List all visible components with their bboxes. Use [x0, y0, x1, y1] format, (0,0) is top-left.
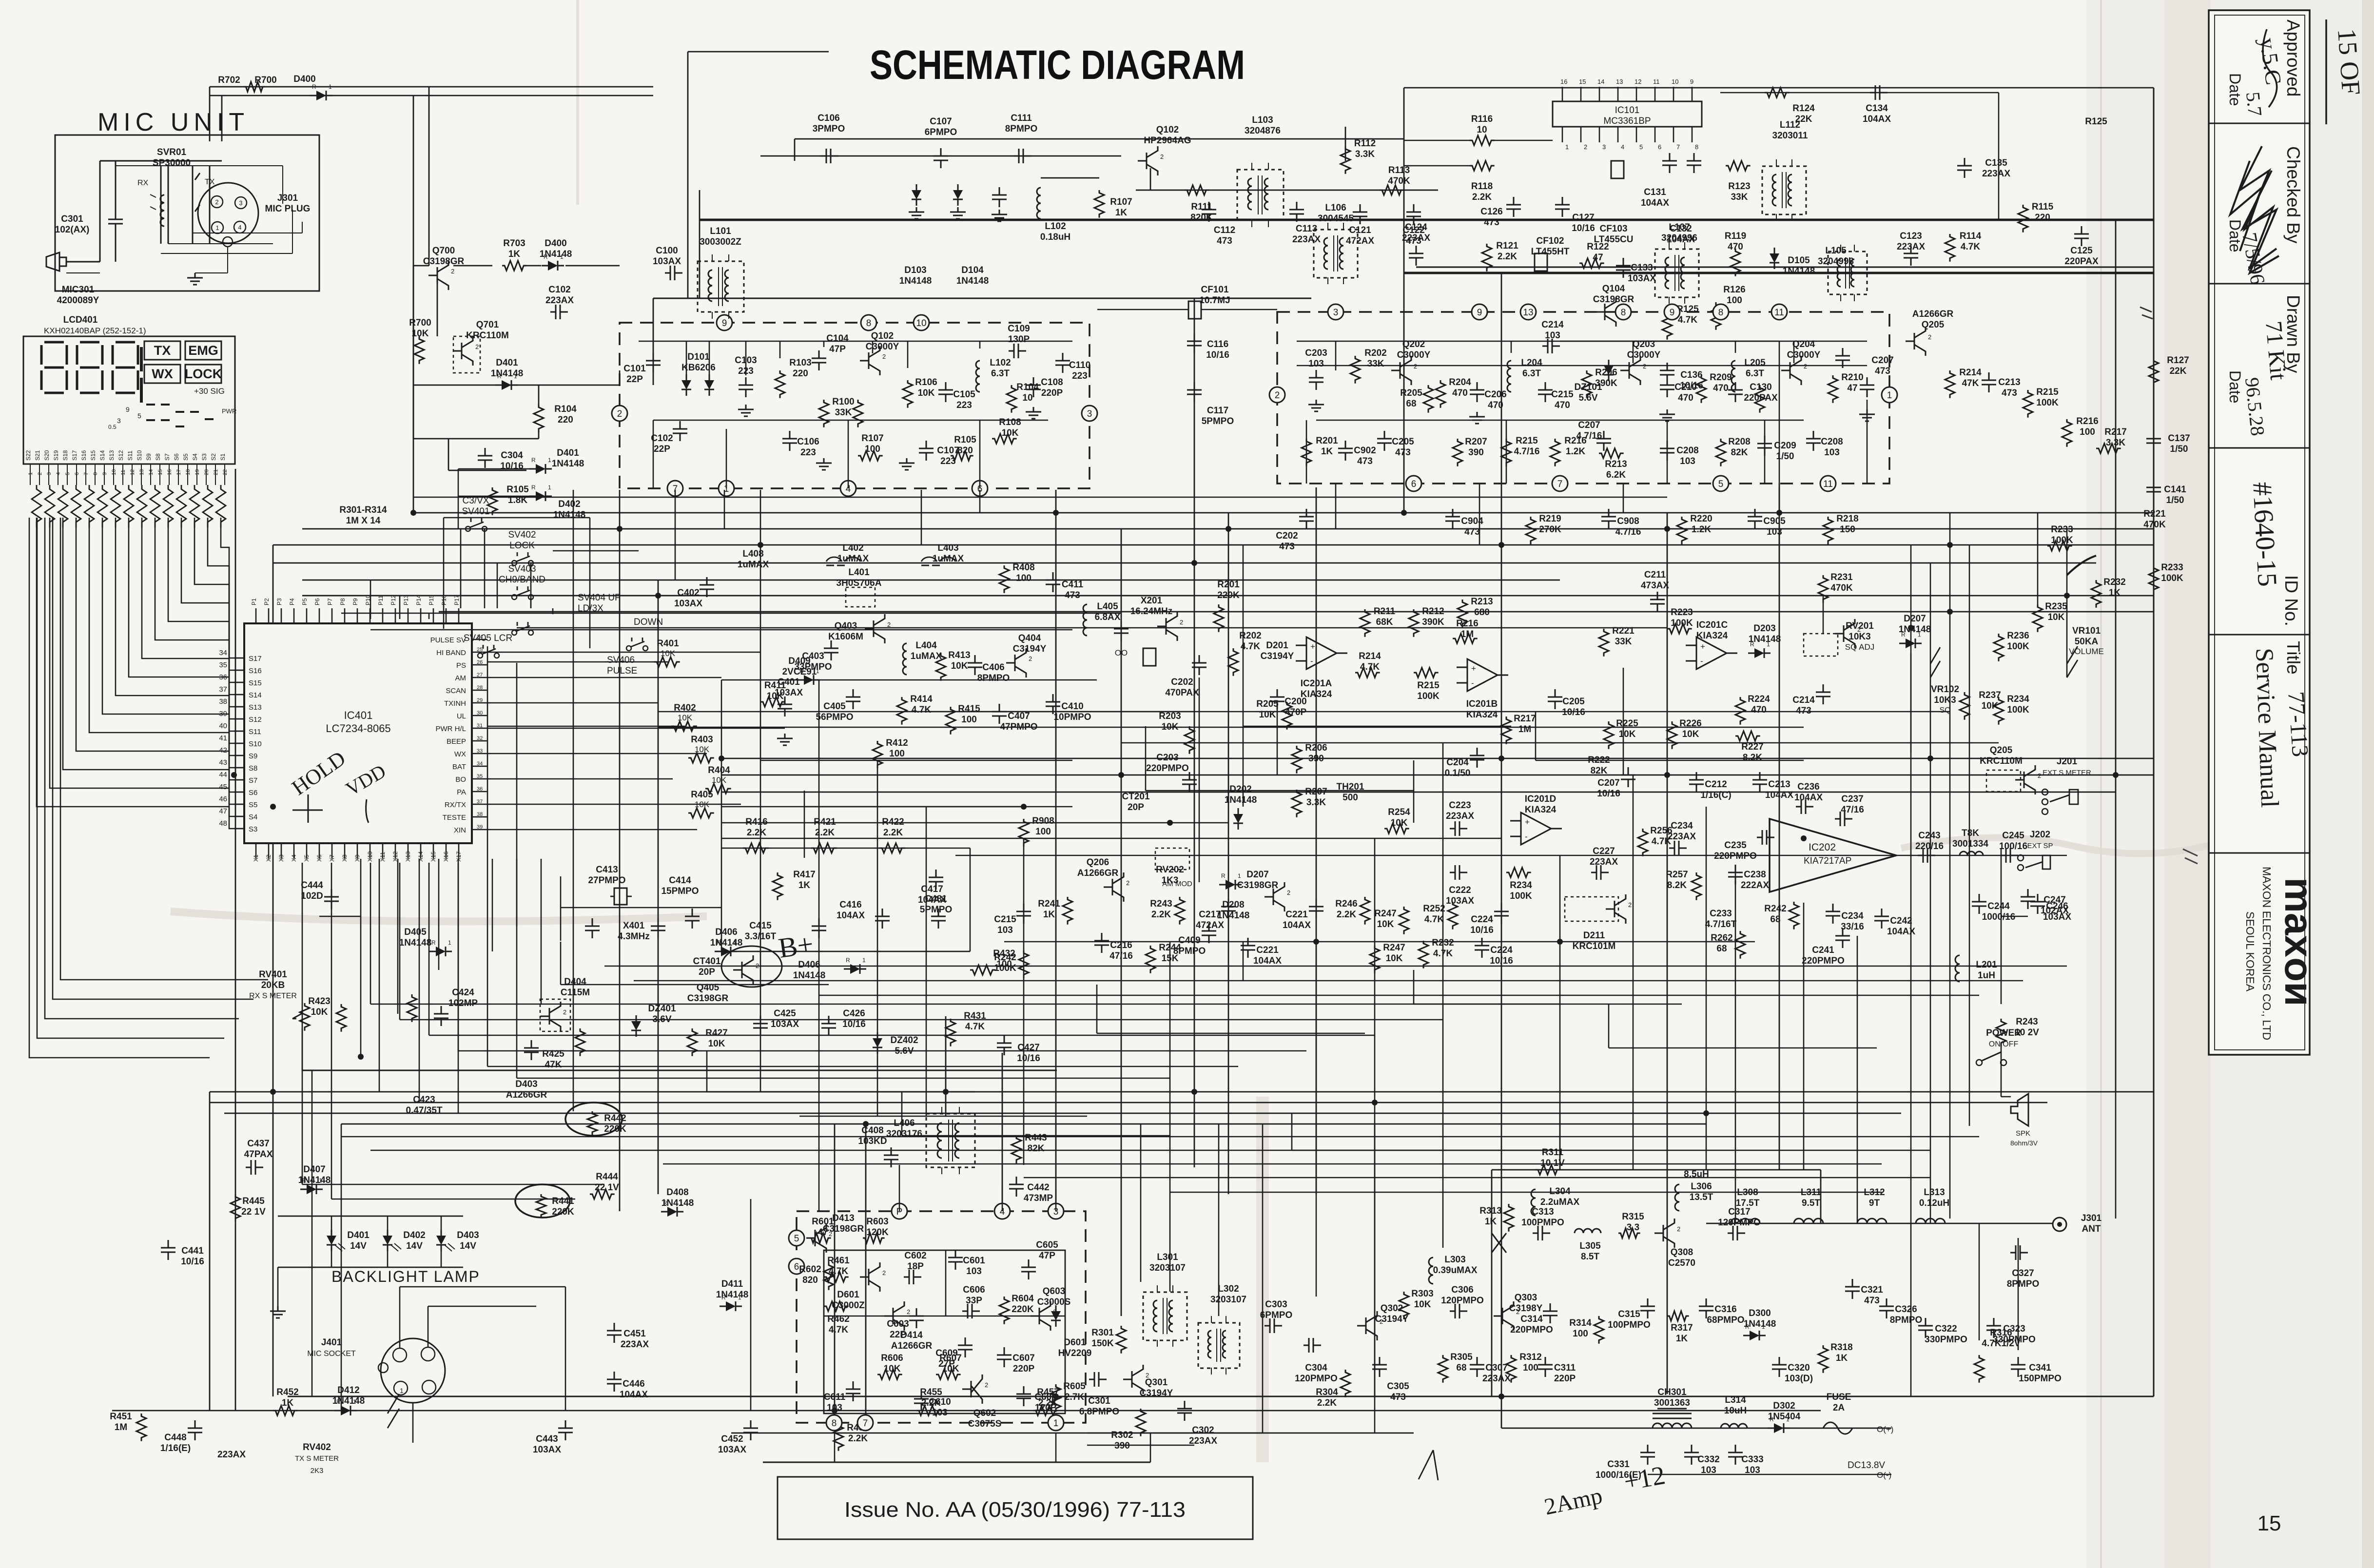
svg-text:C209: C209: [1774, 441, 1796, 451]
svg-text:390: 390: [1468, 447, 1484, 458]
svg-text:6PMPO: 6PMPO: [925, 127, 957, 137]
svg-text:35: 35: [219, 661, 227, 669]
svg-text:1N4148: 1N4148: [332, 1396, 365, 1406]
svg-text:473: 473: [1864, 1296, 1880, 1306]
svg-text:P4: P4: [289, 598, 295, 605]
svg-text:R304: R304: [1316, 1387, 1338, 1397]
svg-text:6: 6: [74, 472, 80, 475]
svg-text:DC13.8V: DC13.8V: [1848, 1460, 1885, 1471]
svg-text:71 Kit: 71 Kit: [2260, 320, 2291, 381]
svg-text:R314: R314: [1569, 1318, 1592, 1328]
svg-text:2: 2: [1677, 1225, 1680, 1233]
svg-text:Checked By: Checked By: [2283, 146, 2303, 244]
svg-text:104AX: 104AX: [837, 910, 865, 921]
svg-text:22K: 22K: [1795, 114, 1812, 124]
svg-text:D403: D403: [457, 1230, 479, 1240]
svg-text:R213: R213: [1605, 459, 1627, 469]
svg-text:S3: S3: [201, 453, 208, 461]
svg-text:SQ: SQ: [1939, 706, 1950, 715]
svg-text:13: 13: [1523, 308, 1533, 318]
svg-text:15PMPO: 15PMPO: [661, 886, 699, 896]
svg-text:C238: C238: [1744, 870, 1766, 880]
svg-text:6: 6: [1658, 143, 1661, 151]
svg-text:R106: R106: [915, 377, 937, 387]
svg-text:C208: C208: [1821, 437, 1843, 447]
svg-text:104AX: 104AX: [1863, 114, 1891, 124]
svg-text:3204998: 3204998: [1818, 256, 1854, 267]
svg-text:100K: 100K: [2007, 641, 2029, 652]
svg-text:C101: C101: [623, 364, 646, 374]
svg-text:R214: R214: [1959, 368, 1982, 378]
svg-text:9: 9: [126, 406, 130, 413]
svg-text:R421: R421: [814, 817, 836, 827]
svg-text:R412: R412: [886, 738, 908, 748]
svg-text:C242: C242: [1890, 916, 1912, 926]
svg-text:X4: X4: [291, 854, 297, 862]
svg-text:C425: C425: [774, 1008, 796, 1019]
svg-text:9.5T: 9.5T: [1802, 1198, 1820, 1208]
svg-text:10/16: 10/16: [1597, 789, 1620, 799]
svg-text:C908: C908: [1617, 516, 1639, 526]
svg-text:HP2964AG: HP2964AG: [1144, 136, 1191, 146]
svg-text:7: 7: [1557, 479, 1563, 489]
svg-text:P1: P1: [251, 598, 257, 605]
svg-text:Q102: Q102: [871, 331, 894, 341]
svg-text:C606: C606: [963, 1285, 985, 1295]
svg-text:S8: S8: [155, 453, 161, 461]
svg-text:R315: R315: [1622, 1212, 1644, 1222]
svg-text:R124: R124: [1792, 103, 1815, 114]
svg-text:C3000Z: C3000Z: [832, 1300, 865, 1311]
svg-text:1: 1: [329, 83, 332, 90]
svg-text:2: 2: [907, 1308, 910, 1316]
svg-text:17.5T: 17.5T: [1736, 1198, 1760, 1208]
svg-text:D203: D203: [1753, 623, 1775, 634]
svg-text:8PMPO: 8PMPO: [2007, 1279, 2040, 1289]
svg-text:R401: R401: [657, 639, 679, 649]
svg-text:R607: R607: [939, 1353, 961, 1363]
svg-text:C443: C443: [536, 1434, 558, 1444]
svg-text:P12: P12: [390, 595, 397, 605]
svg-text:R441: R441: [552, 1196, 574, 1206]
svg-text:SVR01: SVR01: [157, 147, 187, 157]
svg-text:D405: D405: [404, 927, 427, 937]
svg-text:1K: 1K: [1485, 1217, 1497, 1227]
svg-text:SV405 LCR: SV405 LCR: [464, 633, 512, 643]
svg-text:DZ401: DZ401: [648, 1004, 676, 1014]
svg-text:R247: R247: [1374, 909, 1396, 919]
svg-text:10 1V: 10 1V: [1540, 1158, 1565, 1168]
svg-text:8PMPO: 8PMPO: [977, 673, 1010, 683]
svg-text:47: 47: [817, 1227, 828, 1238]
svg-text:10K: 10K: [1377, 919, 1394, 929]
svg-text:S5: S5: [182, 453, 189, 461]
svg-text:C221: C221: [1285, 910, 1308, 920]
svg-text:AM MOD: AM MOD: [1162, 880, 1192, 888]
svg-text:2.2K: 2.2K: [815, 828, 835, 838]
svg-text:C215: C215: [994, 914, 1016, 925]
svg-text:22P: 22P: [890, 1330, 906, 1340]
svg-text:C244: C244: [1987, 901, 2010, 911]
svg-text:820: 820: [802, 1275, 818, 1285]
svg-text:2.2K: 2.2K: [1337, 910, 1356, 920]
svg-text:C110: C110: [1069, 360, 1090, 370]
svg-text:D400: D400: [545, 238, 566, 249]
svg-text:35: 35: [477, 774, 483, 779]
svg-text:1N4148: 1N4148: [553, 510, 586, 520]
svg-text:R451: R451: [110, 1412, 132, 1422]
svg-text:R241: R241: [1038, 899, 1060, 909]
svg-text:R302: R302: [1111, 1430, 1133, 1440]
svg-text:3001363: 3001363: [1654, 1398, 1690, 1408]
svg-text:473: 473: [1796, 706, 1811, 716]
svg-text:R404: R404: [708, 765, 730, 775]
svg-text:C202: C202: [1276, 531, 1298, 541]
svg-text:4.7/16T: 4.7/16T: [1705, 919, 1737, 929]
svg-text:2A: 2A: [1833, 1403, 1845, 1413]
svg-text:C306: C306: [1451, 1285, 1473, 1295]
svg-text:390K: 390K: [1595, 378, 1617, 388]
svg-text:1K: 1K: [2109, 588, 2121, 598]
svg-text:MIC PLUG: MIC PLUG: [265, 204, 311, 214]
svg-text:R605: R605: [1063, 1381, 1086, 1392]
svg-text:3PMPO: 3PMPO: [813, 124, 845, 134]
svg-text:223AX: 223AX: [1402, 233, 1430, 243]
svg-text:IC401: IC401: [344, 709, 373, 721]
svg-text:S18: S18: [62, 450, 69, 461]
svg-text:4.7K: 4.7K: [1678, 315, 1697, 325]
svg-text:R: R: [846, 957, 850, 964]
svg-text:C213: C213: [1768, 779, 1790, 790]
svg-text:R414: R414: [910, 694, 933, 704]
svg-text:39: 39: [219, 710, 227, 718]
svg-text:R908: R908: [1032, 816, 1054, 826]
svg-text:R443: R443: [1025, 1133, 1047, 1143]
svg-text:R125: R125: [2085, 116, 2107, 127]
svg-text:L406: L406: [894, 1118, 915, 1128]
svg-text:223AX: 223AX: [1482, 1374, 1511, 1384]
svg-text:R121: R121: [1496, 241, 1518, 251]
svg-text:82K: 82K: [1028, 1143, 1045, 1154]
svg-text:100: 100: [961, 715, 977, 725]
svg-text:KIA324: KIA324: [1301, 689, 1332, 699]
svg-text:1N4148: 1N4148: [552, 459, 584, 469]
svg-text:2VCE91: 2VCE91: [782, 667, 817, 677]
svg-text:10/16: 10/16: [1572, 223, 1595, 233]
svg-text:R413: R413: [948, 650, 970, 660]
svg-text:47/16: 47/16: [1109, 951, 1133, 961]
svg-text:R113: R113: [1388, 165, 1410, 175]
svg-text:2.2K: 2.2K: [1498, 252, 1517, 262]
svg-text:C405: C405: [823, 701, 846, 712]
svg-text:C451: C451: [623, 1329, 646, 1339]
svg-text:68: 68: [1716, 944, 1727, 954]
svg-text:37: 37: [219, 685, 227, 694]
svg-text:1/50: 1/50: [2170, 444, 2188, 454]
svg-text:470: 470: [1488, 400, 1503, 410]
svg-text:1.2K: 1.2K: [1566, 446, 1585, 457]
svg-text:11: 11: [1774, 308, 1784, 318]
svg-text:103AX: 103AX: [718, 1445, 746, 1455]
svg-text:68: 68: [1406, 399, 1416, 409]
svg-text:10K: 10K: [1002, 428, 1019, 438]
svg-text:R209: R209: [1710, 372, 1732, 383]
svg-text:39: 39: [477, 824, 483, 830]
svg-text:R217: R217: [1514, 714, 1536, 724]
svg-text:10: 10: [1672, 78, 1678, 85]
svg-text:S7: S7: [164, 453, 171, 461]
svg-text:R208: R208: [1728, 437, 1750, 447]
svg-text:R: R: [531, 484, 536, 491]
svg-text:R427: R427: [705, 1028, 727, 1038]
svg-text:473: 473: [1484, 217, 1499, 228]
svg-text:R213: R213: [1471, 597, 1493, 607]
svg-text:BACKLIGHT LAMP: BACKLIGHT LAMP: [331, 1268, 480, 1285]
svg-text:470K: 470K: [1388, 176, 1410, 186]
svg-text:1N4148: 1N4148: [956, 276, 989, 286]
svg-text:47PAX: 47PAX: [244, 1149, 273, 1160]
svg-text:C317: C317: [1728, 1207, 1750, 1217]
svg-text:2.2K: 2.2K: [1151, 910, 1171, 920]
svg-text:KRC101M: KRC101M: [1573, 941, 1616, 951]
svg-text:10/16: 10/16: [1562, 707, 1585, 717]
svg-text:16: 16: [1560, 78, 1567, 85]
svg-text:22P: 22P: [654, 444, 670, 454]
svg-text:2: 2: [475, 343, 479, 350]
svg-text:1N4148: 1N4148: [491, 368, 524, 379]
svg-text:DZ402: DZ402: [890, 1035, 918, 1045]
svg-text:100: 100: [1573, 1329, 1588, 1339]
svg-text:6.3T: 6.3T: [1522, 368, 1541, 379]
svg-text:SCHEMATIC DIAGRAM: SCHEMATIC DIAGRAM: [870, 42, 1245, 88]
svg-text:1K: 1K: [1321, 446, 1333, 457]
svg-text:100K: 100K: [2051, 535, 2073, 545]
svg-text:C3194Y: C3194Y: [1261, 651, 1294, 661]
svg-text:4200089Y: 4200089Y: [57, 295, 99, 306]
svg-text:D404: D404: [564, 977, 586, 987]
svg-text:R603: R603: [866, 1217, 888, 1227]
svg-text:C3198GR: C3198GR: [1237, 880, 1279, 890]
svg-text:CT201: CT201: [1122, 792, 1149, 802]
svg-text:2: 2: [1126, 879, 1129, 887]
svg-text:LOCK: LOCK: [185, 367, 222, 381]
svg-text:14V: 14V: [460, 1241, 476, 1251]
svg-text:1N4148: 1N4148: [399, 938, 432, 948]
svg-text:C213: C213: [1998, 377, 2020, 387]
svg-text:D401: D401: [496, 358, 518, 368]
svg-text:1: 1: [548, 457, 551, 464]
svg-text:2: 2: [882, 353, 886, 360]
svg-text:L302: L302: [1218, 1284, 1239, 1294]
svg-text:C130: C130: [1750, 382, 1771, 392]
svg-text:1N4148: 1N4148: [1225, 795, 1257, 805]
svg-text:21: 21: [213, 469, 219, 475]
svg-text:L103: L103: [1252, 115, 1273, 125]
svg-text:D401: D401: [557, 448, 579, 458]
svg-text:P8: P8: [339, 598, 346, 605]
svg-text:C322: C322: [1935, 1324, 1957, 1334]
svg-text:3.3K: 3.3K: [2106, 438, 2125, 448]
svg-text:+: +: [1700, 642, 1705, 651]
svg-text:C417: C417: [921, 884, 943, 894]
svg-text:R215: R215: [2036, 387, 2059, 397]
svg-text:1: 1: [400, 1387, 404, 1394]
svg-text:C601: C601: [963, 1256, 985, 1266]
svg-text:29: 29: [477, 697, 483, 703]
svg-text:EXT S METER: EXT S METER: [2043, 769, 2091, 777]
svg-text:9: 9: [722, 318, 727, 329]
svg-text:R254: R254: [1388, 807, 1410, 817]
svg-text:R317: R317: [1671, 1323, 1693, 1333]
svg-text:Title: Title: [2283, 641, 2303, 675]
svg-text:17: 17: [176, 469, 182, 475]
svg-text:5: 5: [65, 472, 71, 475]
svg-text:8: 8: [866, 318, 872, 329]
svg-text:R123: R123: [1728, 181, 1750, 192]
svg-text:CT401: CT401: [693, 956, 720, 967]
svg-text:Q205: Q205: [1990, 745, 2013, 755]
svg-text:#1640-15: #1640-15: [2247, 481, 2282, 587]
svg-text:10K: 10K: [1619, 729, 1636, 739]
svg-text:X8: X8: [341, 854, 348, 862]
svg-text:470: 470: [1555, 400, 1570, 410]
svg-text:R702: R702: [218, 75, 240, 85]
svg-text:130P: 130P: [1008, 334, 1030, 345]
svg-text:1N5404: 1N5404: [1768, 1412, 1801, 1422]
svg-text:6.8PMPO: 6.8PMPO: [1079, 1407, 1119, 1417]
svg-text:470PAX: 470PAX: [1165, 688, 1199, 698]
svg-text:C409: C409: [1178, 935, 1200, 946]
svg-text:D601: D601: [1064, 1337, 1086, 1348]
svg-text:A1266GR: A1266GR: [1077, 868, 1119, 878]
svg-text:C205: C205: [1562, 697, 1585, 707]
svg-text:42: 42: [219, 746, 227, 755]
svg-text:100: 100: [1035, 827, 1051, 837]
svg-text:22: 22: [222, 469, 228, 475]
svg-text:34: 34: [477, 761, 483, 767]
svg-text:C136: C136: [1680, 370, 1702, 380]
svg-text:D601: D601: [837, 1290, 859, 1300]
svg-text:220PMPO: 220PMPO: [1714, 851, 1757, 861]
svg-text:R: R: [531, 457, 536, 464]
svg-text:S17: S17: [249, 655, 262, 663]
svg-text:2: 2: [563, 1008, 566, 1016]
svg-text:10/16: 10/16: [1206, 350, 1229, 360]
svg-text:3204876: 3204876: [1245, 126, 1281, 136]
svg-text:4: 4: [1621, 143, 1624, 151]
svg-text:C121: C121: [1349, 225, 1371, 235]
svg-text:R: R: [431, 939, 436, 946]
svg-text:C411: C411: [1062, 580, 1084, 590]
svg-text:68K: 68K: [1376, 617, 1393, 627]
svg-text:220: 220: [558, 415, 573, 425]
svg-text:XIN: XIN: [454, 826, 466, 834]
svg-text:8.2K: 8.2K: [1743, 753, 1762, 763]
svg-text:1uMAX: 1uMAX: [837, 554, 869, 564]
svg-text:WX: WX: [454, 750, 466, 758]
svg-text:L402: L402: [842, 543, 863, 553]
svg-text:R242: R242: [994, 952, 1016, 963]
svg-text:R236: R236: [2007, 631, 2029, 641]
svg-text:4.7K: 4.7K: [829, 1325, 848, 1335]
svg-text:3001334: 3001334: [1952, 839, 1988, 849]
svg-text:R114: R114: [1960, 231, 1982, 241]
svg-text:R606: R606: [881, 1353, 903, 1363]
svg-text:L304: L304: [1549, 1186, 1571, 1197]
svg-text:C141: C141: [2164, 484, 2186, 495]
svg-text:1/16(C): 1/16(C): [1700, 790, 1731, 800]
svg-text:473: 473: [1217, 236, 1232, 246]
svg-text:5.7: 5.7: [2242, 91, 2266, 117]
svg-text:C234: C234: [1841, 911, 1864, 921]
svg-text:6.2K: 6.2K: [1606, 470, 1626, 480]
svg-text:1.2K: 1.2K: [1692, 524, 1711, 535]
svg-text:K1606M: K1606M: [828, 632, 863, 642]
svg-text:44: 44: [219, 771, 227, 779]
svg-text:0.39uMAX: 0.39uMAX: [1433, 1265, 1478, 1276]
svg-text:C204: C204: [1446, 757, 1469, 768]
svg-text:103AX: 103AX: [653, 256, 681, 267]
svg-text:D211: D211: [1583, 930, 1605, 941]
svg-text:11: 11: [1653, 78, 1660, 85]
svg-text:BAT: BAT: [452, 763, 466, 771]
svg-text:R415: R415: [958, 704, 980, 714]
svg-text:100K: 100K: [2007, 705, 2029, 715]
svg-text:223AX: 223AX: [1446, 811, 1474, 821]
svg-text:R602: R602: [799, 1264, 821, 1275]
svg-text:O(-): O(-): [1877, 1471, 1891, 1480]
svg-text:Date: Date: [2226, 370, 2244, 404]
svg-text:2.2K: 2.2K: [1472, 192, 1492, 202]
svg-text:10K: 10K: [1414, 1299, 1431, 1310]
svg-text:R246: R246: [1335, 899, 1357, 909]
svg-text:10/16: 10/16: [1470, 925, 1494, 935]
svg-text:L101: L101: [710, 226, 731, 236]
svg-text:2: 2: [1857, 626, 1861, 633]
svg-text:C224: C224: [1490, 945, 1513, 955]
svg-text:8.5T: 8.5T: [1581, 1252, 1599, 1262]
svg-text:R604: R604: [1012, 1294, 1034, 1304]
svg-text:C245: C245: [2002, 831, 2024, 841]
svg-text:+: +: [1310, 642, 1315, 651]
svg-text:5PMPO: 5PMPO: [1202, 416, 1234, 426]
svg-text:470K: 470K: [2143, 520, 2166, 530]
svg-text:36: 36: [219, 673, 227, 681]
svg-text:100K: 100K: [2036, 398, 2059, 408]
svg-text:223AX: 223AX: [545, 295, 574, 306]
svg-text:R: R: [1221, 872, 1226, 879]
svg-text:S10: S10: [136, 450, 143, 461]
svg-text:TX: TX: [154, 343, 171, 358]
svg-text:Approved: Approved: [2283, 19, 2303, 97]
svg-text:103(D): 103(D): [1785, 1374, 1813, 1384]
svg-text:J301: J301: [277, 193, 298, 203]
svg-text:22 1V: 22 1V: [241, 1207, 266, 1217]
svg-text:O(+): O(+): [1877, 1425, 1893, 1434]
svg-text:R207: R207: [1465, 437, 1487, 447]
svg-text:1M: 1M: [1461, 629, 1474, 639]
svg-text:KIA7217AP: KIA7217AP: [1804, 856, 1851, 866]
svg-text:47P: 47P: [829, 344, 846, 354]
svg-text:100K: 100K: [1671, 618, 1693, 628]
svg-text:1N4148: 1N4148: [1744, 1319, 1776, 1329]
svg-text:470: 470: [1751, 705, 1767, 715]
svg-text:1M: 1M: [1518, 724, 1531, 735]
svg-text:S9: S9: [145, 453, 152, 461]
svg-text:X11: X11: [379, 852, 386, 862]
svg-text:C137: C137: [2168, 433, 2190, 444]
svg-text:56PMPO: 56PMPO: [816, 712, 853, 722]
